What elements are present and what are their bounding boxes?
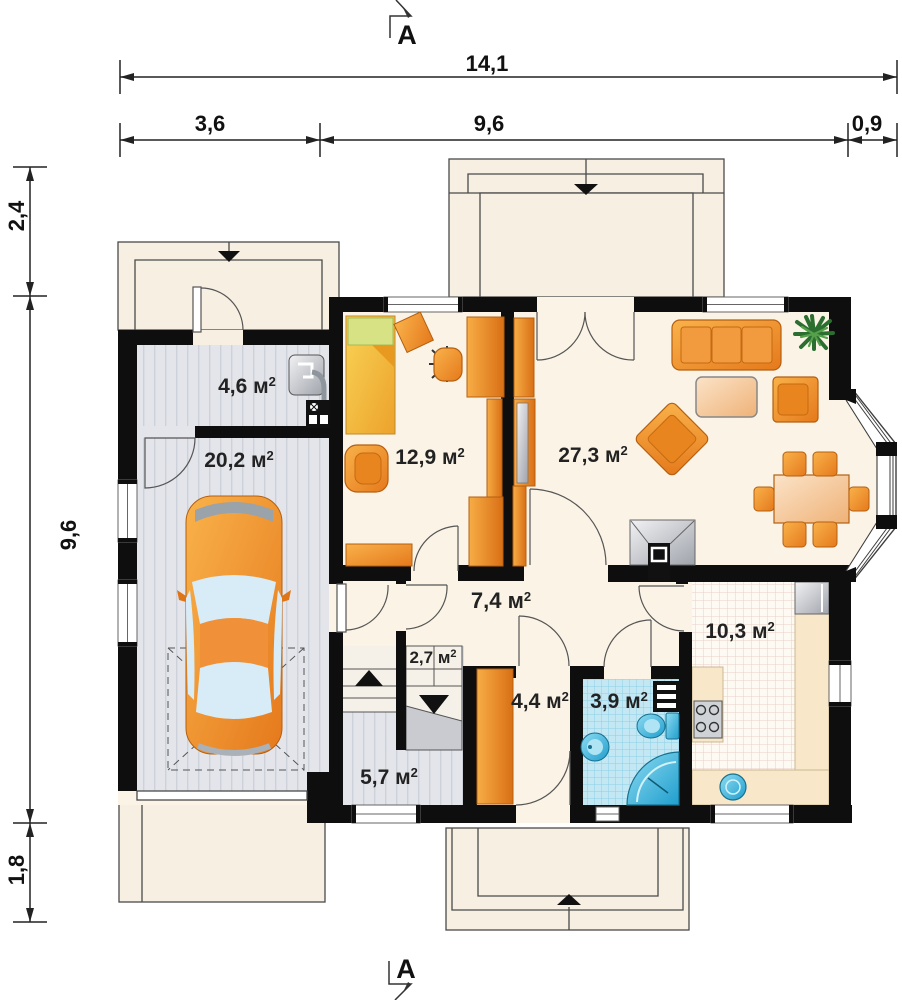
svg-text:9,6: 9,6	[56, 520, 81, 551]
svg-text:10,3 м2: 10,3 м2	[705, 619, 774, 643]
svg-text:5,7 м2: 5,7 м2	[360, 765, 418, 789]
svg-text:14,1: 14,1	[466, 51, 509, 76]
svg-text:A: A	[397, 20, 417, 50]
svg-text:3,9 м2: 3,9 м2	[590, 689, 648, 713]
svg-text:20,2 м2: 20,2 м2	[204, 448, 273, 472]
svg-text:2,7 м2: 2,7 м2	[409, 648, 456, 667]
svg-text:4,6 м2: 4,6 м2	[218, 374, 276, 398]
svg-text:9,6: 9,6	[474, 111, 505, 136]
svg-text:1,8: 1,8	[4, 855, 29, 886]
svg-text:7,4 м2: 7,4 м2	[471, 588, 531, 613]
svg-text:0,9: 0,9	[852, 111, 883, 136]
svg-text:27,3 м2: 27,3 м2	[558, 443, 627, 467]
svg-text:3,6: 3,6	[195, 111, 226, 136]
svg-text:2,4: 2,4	[4, 200, 29, 231]
svg-text:A: A	[396, 954, 416, 984]
svg-text:12,9 м2: 12,9 м2	[395, 445, 464, 469]
svg-text:4,4 м2: 4,4 м2	[511, 689, 569, 713]
